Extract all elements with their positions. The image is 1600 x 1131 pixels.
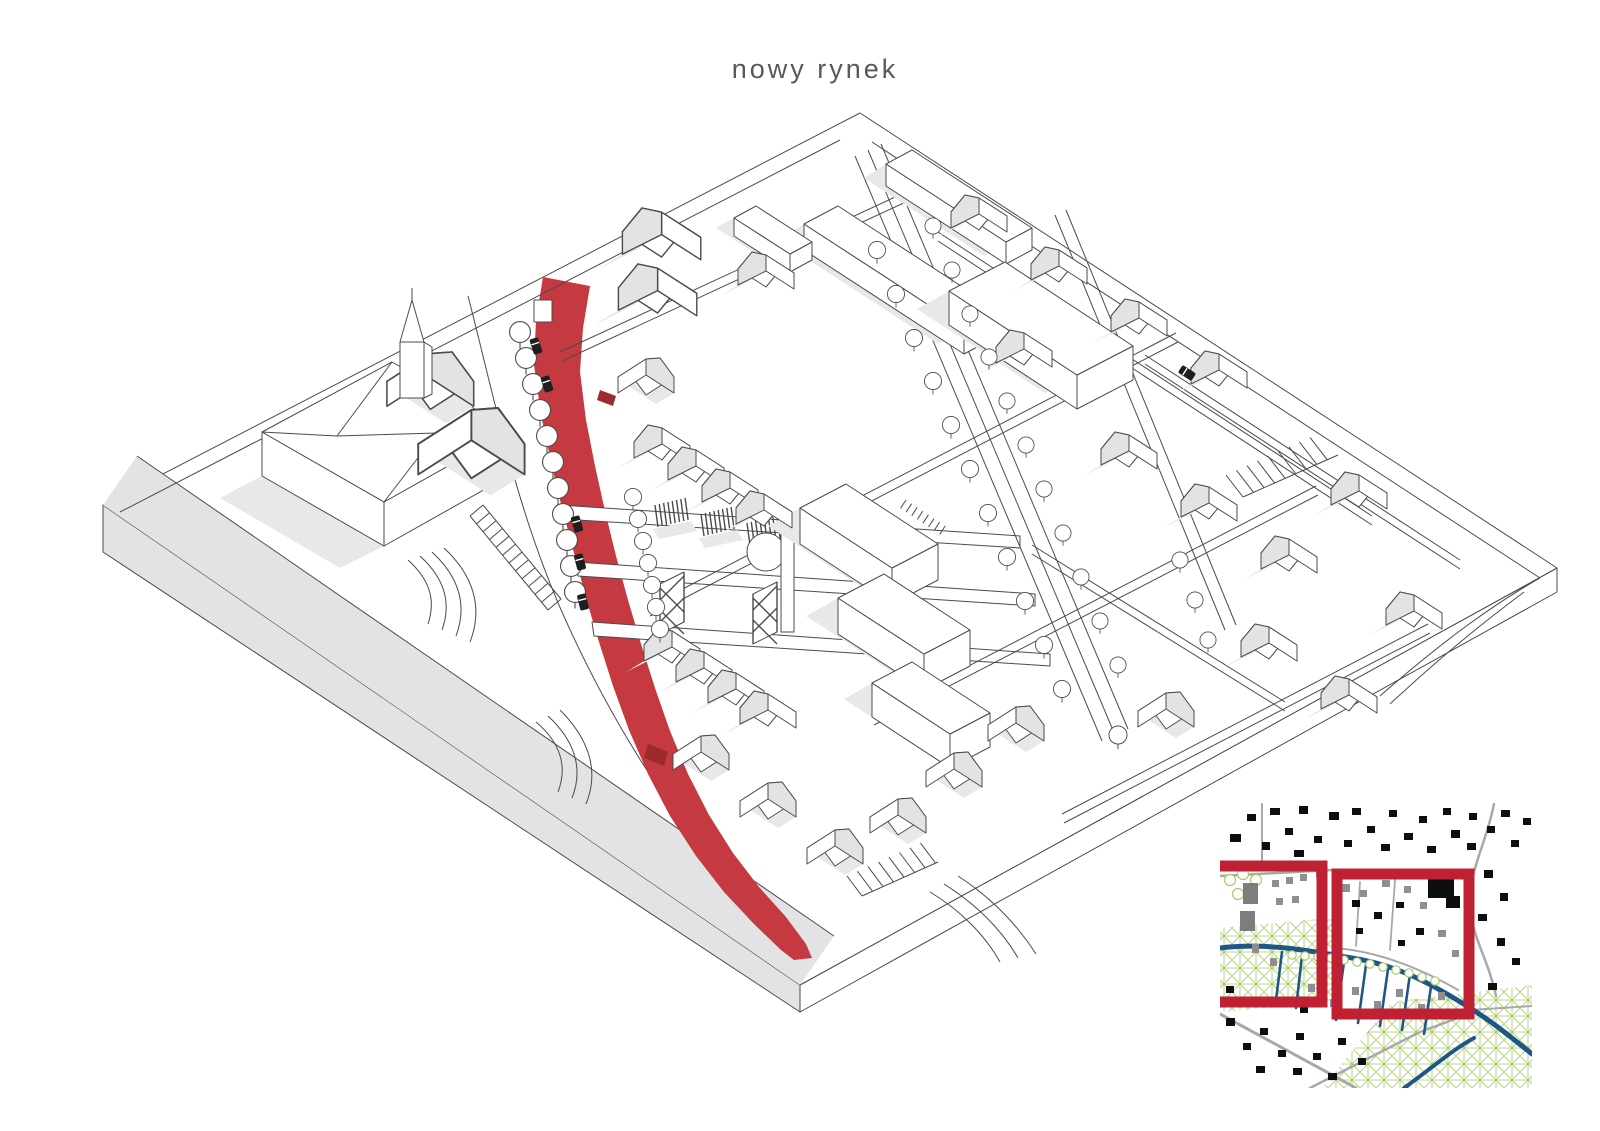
square-tree xyxy=(747,533,785,571)
axonometric-urban-drawing: nowy rynek xyxy=(0,0,1600,1131)
inset-location-map xyxy=(1220,803,1532,1088)
church-spire xyxy=(400,300,424,342)
page-title: nowy rynek xyxy=(732,54,899,84)
bus-stop-bay xyxy=(534,300,552,322)
drawing-sheet: nowy rynek xyxy=(0,0,1600,1131)
